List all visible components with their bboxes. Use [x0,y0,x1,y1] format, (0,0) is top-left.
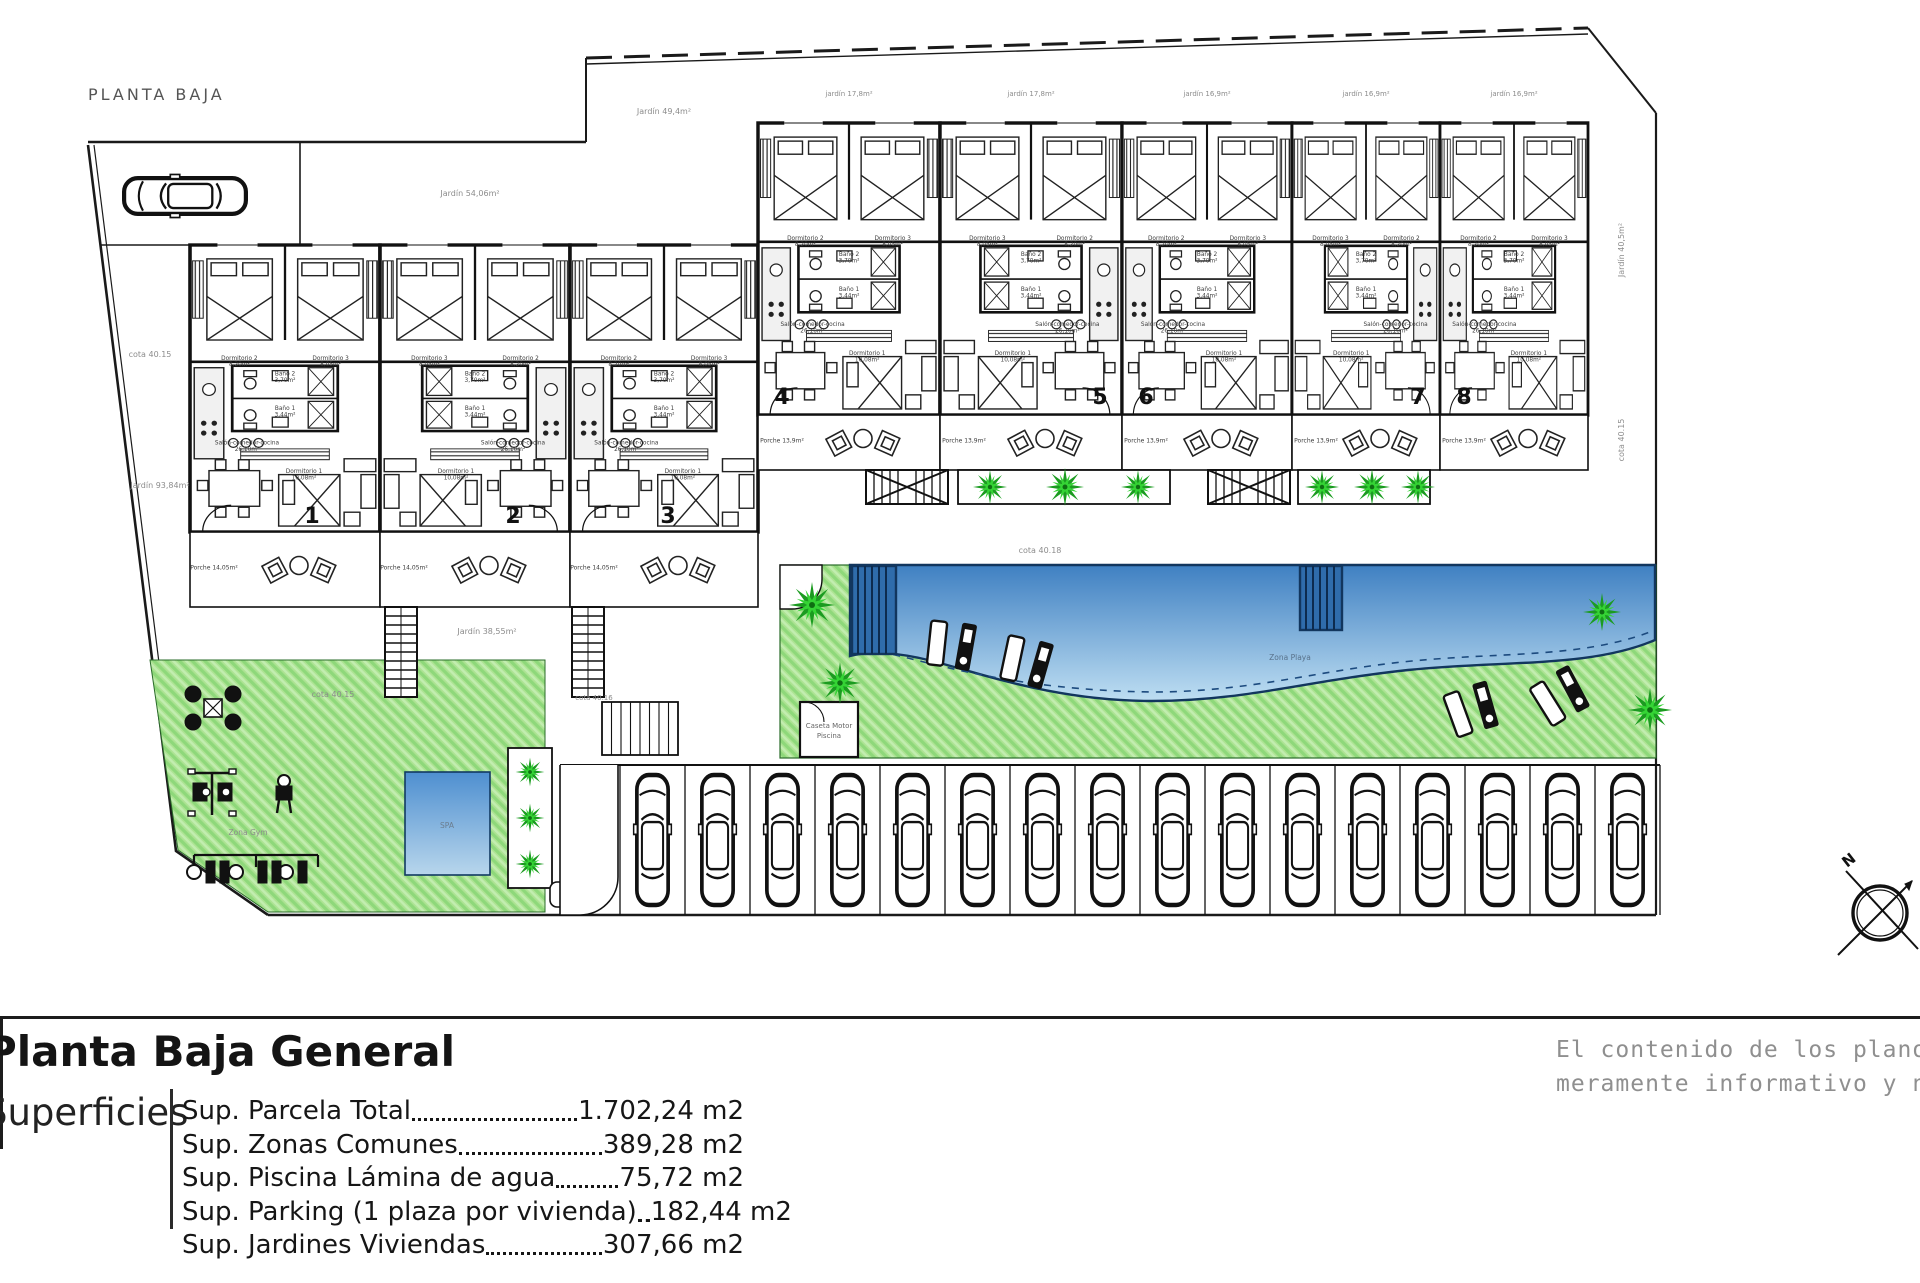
superficies-label: Superficies [0,1091,188,1134]
surface-row-label: Sup. Piscina Lámina de agua [182,1163,555,1193]
palm-icon [516,804,545,833]
unit-3: Dormitorio 28,20m²Dormitorio 38,05m²Baño… [570,243,758,532]
stairs-icon [385,607,417,697]
room-label: Baño 13,44m² [1356,287,1377,299]
spa-label: SPA [440,821,455,830]
palm-icon [1583,593,1621,631]
zona-gym-label: Zona Gym [228,828,267,837]
surface-row-label: Sup. Jardines Viviendas [182,1230,485,1260]
car-icon [1544,775,1582,905]
surface-row-value: 389,28 m2 [603,1130,744,1160]
porch-label: Porche 13,9m² [1442,438,1486,445]
area-label: Jardín 38,55m² [456,627,516,636]
area-label: Jardín 54,06m² [439,189,499,198]
surface-row-value: 307,66 m2 [603,1230,744,1260]
porch-right: Porche 13,9m² [758,415,940,470]
unit-5: Dormitorio 28,20m²Dormitorio 38,05m²Baño… [940,121,1122,415]
unit-floorplan [380,243,570,532]
stairs-icon [1208,470,1290,504]
area-label: jardín 16,9m² [1182,90,1230,98]
porch-right: Porche 13,9m² [940,415,1122,470]
porch-left: Porche 14,05m² [380,532,570,607]
unit-7: Dormitorio 28,20m²Dormitorio 38,05m²Baño… [1292,121,1440,415]
car-icon [1154,775,1192,905]
palm-icon [973,470,1007,504]
porch-left: Porche 14,05m² [570,532,758,607]
room-label: Baño 13,44m² [839,287,860,299]
porch-label: Porche 13,9m² [1294,438,1338,445]
porch-label: Porche 14,05m² [190,565,238,572]
legend-divider [170,1089,173,1229]
palm-icon [1354,469,1390,505]
parking-entry-curve [560,765,618,915]
area-label: jardín 16,9m² [1341,90,1389,98]
room-label: Baño 23,70m² [275,372,296,384]
car-icon [1609,775,1647,905]
room-label: Baño 13,44m² [1197,287,1218,299]
porch-right: Porche 13,9m² [1440,415,1588,470]
sheet-title: Planta Baja General [0,1027,455,1076]
porch-label: Porche 14,05m² [570,565,618,572]
palm-icon [1305,470,1339,504]
area-label: Jardín 49,4m² [636,107,691,116]
palm-icon [516,850,545,879]
area-label: jardín 16,9m² [1489,90,1537,98]
surface-row: Sup. Parking (1 plaza por vivienda)182,4… [182,1193,744,1226]
unit-8: Dormitorio 28,20m²Dormitorio 38,05m²Baño… [1440,121,1588,415]
room-label: Baño 23,70m² [1197,252,1218,264]
unit-floorplan [190,243,380,532]
car-icon [1414,775,1452,905]
car-icon [764,775,802,905]
pool-garden: Zona Playa Caseta Motor Piscina [780,565,1656,758]
surface-row-value: 75,72 m2 [619,1163,744,1193]
porch-label: Porche 14,05m² [380,565,428,572]
car-icon [1219,775,1257,905]
unit-floorplan [1440,121,1588,415]
car-icon [1089,775,1127,905]
disclaimer-line1: El contenido de los planos tiene valo [1556,1033,1920,1067]
room-label: Baño 23,70m² [839,252,860,264]
unit-6: Dormitorio 28,20m²Dormitorio 38,05m²Baño… [1122,121,1292,415]
dotted-leader [556,1185,618,1188]
unit-floorplan [940,121,1122,415]
surface-row-value: 182,44 m2 [651,1197,792,1227]
room-label: Baño 13,44m² [1021,287,1042,299]
area-label: cota 40.15 [312,690,355,699]
car-icon [634,775,672,905]
car-icon [1349,775,1387,905]
unit-number: 4 [774,385,789,410]
room-label: Baño 13,44m² [1504,287,1525,299]
unit-number: 8 [1456,385,1471,410]
car-icon [1024,775,1062,905]
surface-row-value: 1.702,24 m2 [578,1096,744,1126]
unit-number: 3 [660,504,675,529]
car-icon [1479,775,1517,905]
unit-1: Dormitorio 28,20m²Dormitorio 38,05m²Baño… [190,243,380,532]
car-icon [124,174,246,217]
disclaimer-text: El contenido de los planos tiene valo me… [1556,1033,1920,1101]
bike-rack [602,702,678,755]
car-icon [1284,775,1322,905]
car-icon [959,775,997,905]
plan-title: PLANTA BAJA [88,85,225,104]
palm-icon [789,582,835,628]
stairs-icon [866,470,948,504]
unit-number: 5 [1092,385,1107,410]
room-label: Baño 23,70m² [1021,252,1042,264]
dotted-leader [486,1252,602,1255]
surface-row-label: Sup. Zonas Comunes [182,1130,458,1160]
svg-text:Piscina: Piscina [817,732,841,740]
porch-right: Porche 13,9m² [1292,415,1440,470]
area-label: jardín 17,8m² [1006,90,1054,98]
room-label: Baño 13,44m² [654,406,675,418]
unit-number: 6 [1138,385,1153,410]
surface-row-label: Sup. Parcela Total [182,1096,411,1126]
surface-row: Sup. Piscina Lámina de agua75,72 m2 [182,1160,744,1193]
surface-table: Sup. Parcela Total 1.702,24 m2Sup. Zonas… [182,1093,744,1260]
car-icon [699,775,737,905]
area-label: Jardín 93,84m² [129,481,189,490]
area-label: cota 40.15 [1617,419,1626,462]
palm-icon [1046,468,1084,506]
parking-row [560,765,1660,915]
area-label: cota 40.15 [129,350,172,359]
car-icon [829,775,867,905]
unit-floorplan [1292,121,1440,415]
porch-label: Porche 13,9m² [942,438,986,445]
palm-icon [516,758,545,787]
area-label: Jardín 40,5m² [1617,223,1626,278]
surface-row-label: Sup. Parking (1 plaza por vivienda) [182,1197,637,1227]
room-label: Baño 13,44m² [465,406,486,418]
palm-icon [1401,470,1435,504]
area-label: cota 40.18 [1019,546,1062,555]
surface-row: Sup. Parcela Total 1.702,24 m2 [182,1093,744,1126]
stairs-icon [572,607,604,697]
room-label: Baño 23,70m² [465,372,486,384]
unit-number: 1 [304,504,319,529]
porch-label: Porche 13,9m² [1124,438,1168,445]
palm-icon [819,662,861,704]
area-label: jardín 17,8m² [824,90,872,98]
dotted-leader [638,1219,650,1222]
palm-icon [1121,470,1155,504]
porch-left: Porche 14,05m² [190,532,380,607]
room-label: Baño 13,44m² [275,406,296,418]
compass-icon: N [1838,849,1918,955]
svg-text:Caseta Motor: Caseta Motor [806,722,853,730]
room-label: Baño 23,70m² [1504,252,1525,264]
area-label: cota 40.16 [575,694,613,702]
car-icon [894,775,932,905]
unit-floorplan [758,121,940,415]
title-block: Planta Baja General Superficies Sup. Par… [0,1016,1920,1283]
room-label: Baño 23,70m² [654,372,675,384]
zona-playa-label: Zona Playa [1269,653,1311,662]
porch-right: Porche 13,9m² [1122,415,1292,470]
unit-2: Dormitorio 28,20m²Dormitorio 38,05m²Baño… [380,243,570,532]
surface-row: Sup. Jardines Viviendas307,66 m2 [182,1227,744,1260]
disclaimer-line2: meramente informativo y no vinculan [1556,1067,1920,1101]
porch-label: Porche 13,9m² [760,438,804,445]
dotted-leader [459,1152,602,1155]
dotted-leader [412,1118,577,1121]
unit-4: Dormitorio 28,20m²Dormitorio 38,05m²Baño… [758,121,940,415]
palm-icon [1628,688,1672,732]
unit-number: 2 [505,504,520,529]
pool-shed: Caseta Motor Piscina [800,702,858,757]
unit-floorplan [1122,121,1292,415]
unit-floorplan [570,243,758,532]
room-label: Baño 23,70m² [1356,252,1377,264]
surface-row: Sup. Zonas Comunes 389,28 m2 [182,1126,744,1159]
unit-number: 7 [1410,385,1425,410]
svg-text:N: N [1838,849,1859,871]
car-bay [101,142,758,245]
